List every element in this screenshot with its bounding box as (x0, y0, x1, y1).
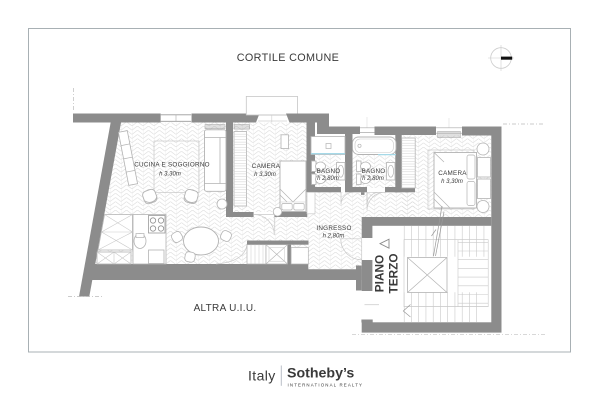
svg-text:ALTRA U.I.U.: ALTRA U.I.U. (194, 303, 257, 314)
svg-text:h 3,30m: h 3,30m (441, 179, 463, 185)
svg-text:CAMERA: CAMERA (438, 170, 467, 177)
svg-text:h 3,30m: h 3,30m (254, 172, 276, 178)
svg-text:h 2,80m: h 2,80m (317, 176, 339, 182)
svg-text:BAGNO: BAGNO (362, 168, 386, 175)
svg-text:BAGNO: BAGNO (317, 168, 341, 175)
svg-text:h 3,30m: h 3,30m (159, 171, 181, 177)
svg-text:INGRESSO: INGRESSO (316, 225, 351, 232)
svg-text:CUCINA E SOGGIORNO: CUCINA E SOGGIORNO (134, 162, 210, 169)
svg-text:h 2,80m: h 2,80m (362, 176, 384, 182)
svg-text:Sotheby’s: Sotheby’s (287, 366, 354, 382)
svg-text:PIANO: PIANO (373, 255, 387, 292)
svg-text:INTERNATIONAL REALTY: INTERNATIONAL REALTY (288, 382, 364, 387)
svg-text:CORTILE COMUNE: CORTILE COMUNE (237, 52, 339, 64)
svg-text:TERZO: TERZO (387, 254, 401, 294)
svg-text:h 2,80m: h 2,80m (323, 233, 345, 239)
svg-text:CAMERA: CAMERA (252, 163, 281, 170)
svg-text:Italy: Italy (248, 368, 276, 384)
